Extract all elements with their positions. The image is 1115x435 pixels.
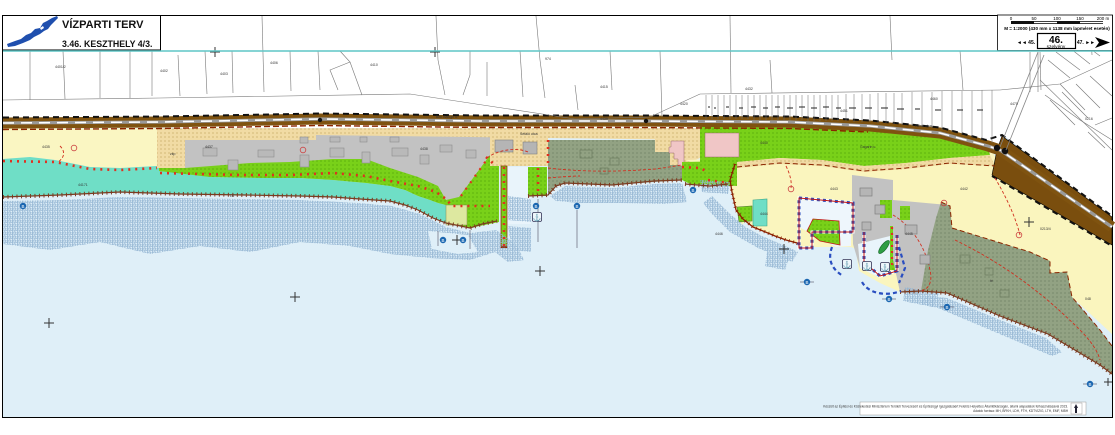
svg-text:3.46. KESZTHELY 4/3.: 3.46. KESZTHELY 4/3. bbox=[62, 39, 152, 49]
svg-text:150: 150 bbox=[1076, 16, 1084, 21]
svg-text:⚓: ⚓ bbox=[533, 213, 542, 222]
svg-text:szelvény: szelvény bbox=[1047, 44, 1066, 50]
svg-text:4451: 4451 bbox=[840, 109, 848, 113]
svg-text:⚓: ⚓ bbox=[863, 262, 872, 271]
svg-text:Sétáló utca: Sétáló utca bbox=[520, 132, 538, 136]
svg-text:B: B bbox=[1088, 382, 1091, 387]
svg-text:B: B bbox=[691, 188, 694, 193]
svg-text:200 m: 200 m bbox=[1097, 16, 1110, 21]
svg-text:0216: 0216 bbox=[1085, 117, 1093, 121]
svg-text:B: B bbox=[534, 204, 537, 209]
svg-text:4403: 4403 bbox=[220, 72, 228, 76]
svg-text:Adatok forrása: MH, BFKH, LDH,: Adatok forrása: MH, BFKH, LDH, FTH, KDTV… bbox=[973, 409, 1069, 413]
svg-text:4442: 4442 bbox=[960, 187, 968, 191]
svg-text:4415: 4415 bbox=[600, 85, 608, 89]
svg-text:M = 1:2000 (430 mm x 1138 mm: M = 1:2000 (430 mm x 1138 mm lapméret es… bbox=[1004, 26, 1110, 31]
svg-text:4440: 4440 bbox=[760, 141, 768, 145]
svg-text:◄◄ 45.: ◄◄ 45. bbox=[1017, 40, 1036, 46]
svg-text:4435: 4435 bbox=[42, 145, 50, 149]
svg-text:50: 50 bbox=[1031, 16, 1037, 21]
svg-text:100: 100 bbox=[1053, 16, 1061, 21]
svg-text:4444: 4444 bbox=[760, 212, 768, 216]
svg-text:4401/2: 4401/2 bbox=[55, 65, 66, 69]
svg-text:té: té bbox=[990, 279, 993, 283]
svg-text:B: B bbox=[945, 305, 948, 310]
svg-text:⚓: ⚓ bbox=[843, 260, 852, 269]
svg-text:Fehér utca: Fehér utca bbox=[915, 124, 932, 128]
svg-text:048: 048 bbox=[1085, 297, 1091, 301]
svg-text:zkp: zkp bbox=[170, 152, 176, 156]
svg-text:B: B bbox=[575, 204, 578, 209]
svg-text:4420: 4420 bbox=[680, 102, 688, 106]
svg-text:B: B bbox=[441, 238, 444, 243]
svg-text:974: 974 bbox=[545, 57, 551, 61]
svg-text:Béri Balogh u.: Béri Balogh u. bbox=[436, 115, 458, 119]
svg-text:4438: 4438 bbox=[420, 147, 428, 151]
svg-text:47. ►►: 47. ►► bbox=[1077, 40, 1095, 46]
svg-text:4406: 4406 bbox=[270, 61, 278, 65]
svg-text:4432: 4432 bbox=[745, 87, 753, 91]
svg-text:Gagarin u.: Gagarin u. bbox=[860, 145, 876, 149]
svg-text:4443: 4443 bbox=[830, 187, 838, 191]
svg-text:4460: 4460 bbox=[930, 97, 938, 101]
svg-text:Készült az Építési és Közleked: Készült az Építési és Közlekedési Minisz… bbox=[823, 404, 1068, 409]
svg-text:4470: 4470 bbox=[1010, 102, 1018, 106]
svg-text:4410: 4410 bbox=[370, 63, 378, 67]
svg-text:B: B bbox=[805, 280, 808, 285]
svg-text:4402: 4402 bbox=[160, 69, 168, 73]
svg-text:⚓: ⚓ bbox=[881, 263, 890, 272]
svg-text:4439: 4439 bbox=[600, 117, 608, 121]
svg-text:4437: 4437 bbox=[205, 145, 213, 149]
svg-text:B: B bbox=[21, 204, 24, 209]
svg-text:0213/4: 0213/4 bbox=[1040, 227, 1051, 231]
svg-text:4445: 4445 bbox=[905, 232, 913, 236]
svg-text:VÍZPARTI TERV: VÍZPARTI TERV bbox=[62, 18, 144, 31]
svg-text:B: B bbox=[887, 297, 890, 302]
svg-text:4446: 4446 bbox=[715, 232, 723, 236]
svg-text:B: B bbox=[461, 238, 464, 243]
svg-text:44171: 44171 bbox=[78, 183, 88, 187]
svg-text:LK: LK bbox=[230, 194, 235, 198]
